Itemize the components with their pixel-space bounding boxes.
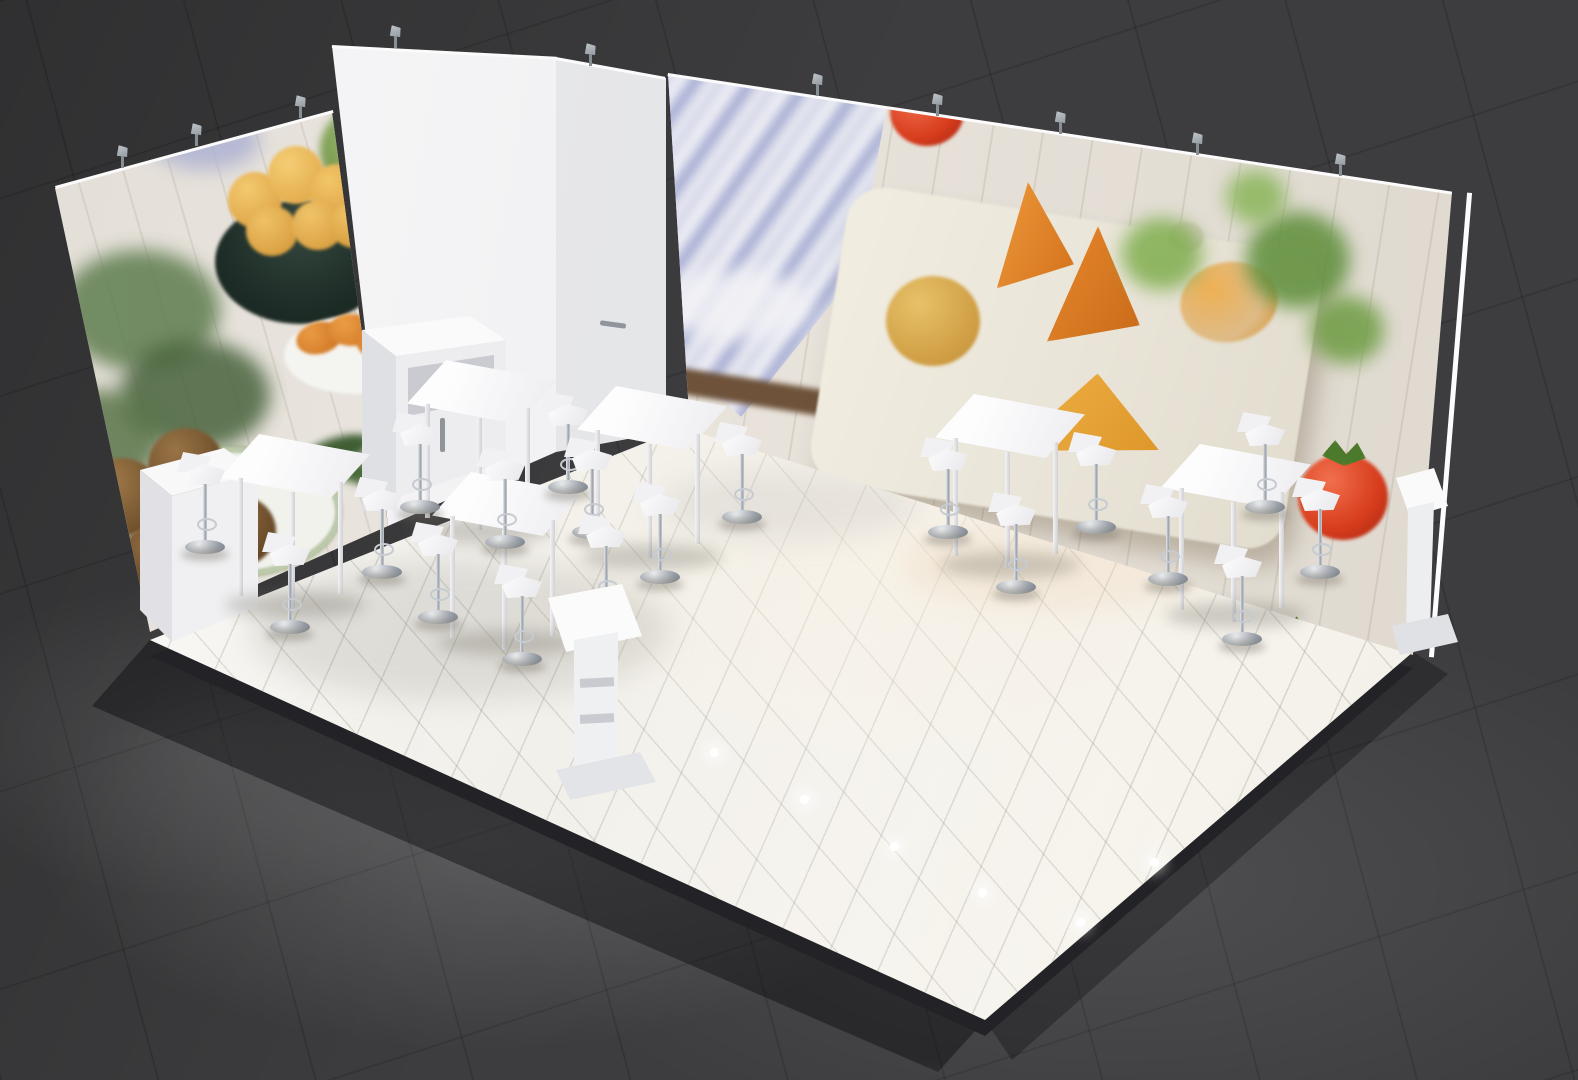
stool-pole [203, 484, 207, 542]
stool-footring [1160, 550, 1180, 563]
stool-shadow [636, 578, 684, 591]
clamp-spotlight-icon [188, 124, 204, 148]
stool-pole [1318, 509, 1322, 567]
arancini-ball-photo [886, 276, 980, 366]
clamp-spotlight-icon [809, 74, 825, 98]
stool-footring [1088, 498, 1108, 511]
basil-photo [1246, 212, 1350, 308]
clamp-spotlight-icon [1189, 133, 1205, 157]
stool-shadow [358, 573, 406, 586]
bar-stool [1243, 412, 1287, 530]
render-viewport [0, 0, 1578, 1080]
stool-shadow [924, 533, 972, 546]
floor-spotlight [710, 748, 719, 757]
stool-pole [288, 564, 292, 622]
stool-pole [418, 444, 422, 502]
clamp-spotlight-icon [1052, 112, 1068, 136]
floor-spotlight [800, 795, 809, 804]
croquette-photo [310, 164, 364, 220]
bar-stool [268, 532, 312, 650]
stool-footring [1257, 478, 1277, 491]
stool-footring [430, 588, 450, 601]
wall-panel-edge [555, 57, 665, 80]
wall-end-edge [1429, 193, 1472, 658]
stool-footring [197, 518, 217, 531]
croquette-cone-photo [984, 179, 1075, 289]
floor-spotlight [1076, 918, 1085, 927]
falafel-photo [82, 458, 162, 536]
croquette-oval-photo [1174, 254, 1284, 350]
falafel-photo [62, 520, 126, 582]
cloth-fold-photo [660, 270, 810, 340]
orange-croquette-photo [353, 324, 405, 365]
croquette-photo [228, 172, 282, 228]
floor-spotlight [978, 888, 987, 897]
croquette-photo [246, 206, 298, 256]
bar-stool [1220, 544, 1264, 662]
bar-stool [638, 482, 682, 600]
croquette-photo [268, 146, 324, 204]
stool-pole [1094, 464, 1098, 522]
bar-stool [500, 564, 544, 682]
bar-stool [483, 447, 527, 565]
table-leg [550, 520, 555, 636]
stool-shadow [266, 628, 314, 641]
stool-shadow [181, 548, 229, 561]
tomato-calyx-photo [1322, 440, 1366, 466]
clamp-spotlight-icon [387, 26, 403, 50]
stool-shadow [1072, 528, 1120, 541]
bowl-photo [215, 200, 385, 324]
croquette-photo [292, 200, 344, 250]
clamp-spotlight-icon [114, 146, 130, 170]
stool-footring [598, 580, 618, 593]
stool-footring [734, 488, 754, 501]
wall-panel-edge [55, 110, 334, 189]
stool-footring [282, 598, 302, 611]
bar-stool [584, 514, 628, 632]
stool-footring [412, 478, 432, 491]
stool-pole [520, 596, 524, 654]
bar-stool [416, 522, 460, 640]
stool-footring [1234, 610, 1254, 623]
stool-pole [380, 509, 384, 567]
basil-photo [1310, 296, 1384, 364]
board-handle-hole-photo [1168, 222, 1204, 252]
stool-footring [1312, 543, 1332, 556]
stool-footring [374, 543, 394, 556]
door-handle [600, 320, 626, 329]
wall-panel-edge [332, 45, 557, 60]
orange-croquette-photo [293, 317, 345, 359]
table-leg [1053, 442, 1058, 554]
stool-shadow [1241, 508, 1289, 521]
rosemary-photo [40, 390, 160, 490]
basil-photo [1226, 170, 1286, 224]
stool-pole [1263, 444, 1267, 502]
croquette-cone-photo [1041, 224, 1145, 347]
table-leg [695, 434, 700, 544]
stool-pole [740, 454, 744, 512]
stool-pole [1166, 516, 1170, 574]
falafel-photo [122, 524, 192, 592]
stool-pole [1014, 524, 1018, 582]
clamp-spotlight-icon [582, 44, 598, 68]
table-leg [338, 482, 343, 594]
stool-shadow [582, 610, 630, 623]
stool-pole [946, 469, 950, 527]
stool-footring [514, 630, 534, 643]
clamp-spotlight-icon [292, 96, 308, 120]
clamp-spotlight-icon [929, 94, 945, 118]
bar-stool [1074, 432, 1118, 550]
floor-spotlight [890, 842, 899, 851]
croquette-photo [246, 206, 298, 256]
rosemary-photo [60, 250, 220, 370]
stool-pole [1240, 576, 1244, 634]
stool-footring [652, 548, 672, 561]
stool-shadow [1218, 640, 1266, 653]
bar-stool [1146, 484, 1190, 602]
bar-stool [720, 422, 764, 540]
bar-stool [926, 437, 970, 555]
stool-footring [497, 513, 517, 526]
brochure-shelf-slot [580, 677, 614, 688]
stool-shadow [396, 508, 444, 521]
bar-stool [183, 452, 227, 570]
stool-footring [940, 503, 960, 516]
stool-footring [1008, 558, 1028, 571]
stool-shadow [481, 543, 529, 556]
orange-croquette-photo [328, 314, 374, 346]
stool-shadow [498, 660, 546, 673]
stool-pole [503, 479, 507, 537]
stool-shadow [414, 618, 462, 631]
romanesco-photo [320, 104, 416, 196]
stool-shadow [1144, 580, 1192, 593]
stool-shadow [718, 518, 766, 531]
croquette-photo [330, 200, 378, 248]
bar-stool [1298, 477, 1342, 595]
clamp-spotlight-icon [1332, 154, 1348, 178]
stool-pole [604, 546, 608, 604]
bar-stool [994, 492, 1038, 610]
stool-shadow [992, 588, 1040, 601]
bar-stool [398, 412, 442, 530]
table-leg [238, 478, 243, 596]
basil-photo [1122, 218, 1202, 290]
linen-cloth-photo [150, 112, 260, 170]
stool-shadow [1296, 573, 1344, 586]
stool-pole [658, 514, 662, 572]
stool-pole [436, 554, 440, 612]
brochure-shelf-slot [580, 713, 614, 724]
plate-photo [284, 316, 424, 394]
floor-spotlight [1150, 858, 1159, 867]
